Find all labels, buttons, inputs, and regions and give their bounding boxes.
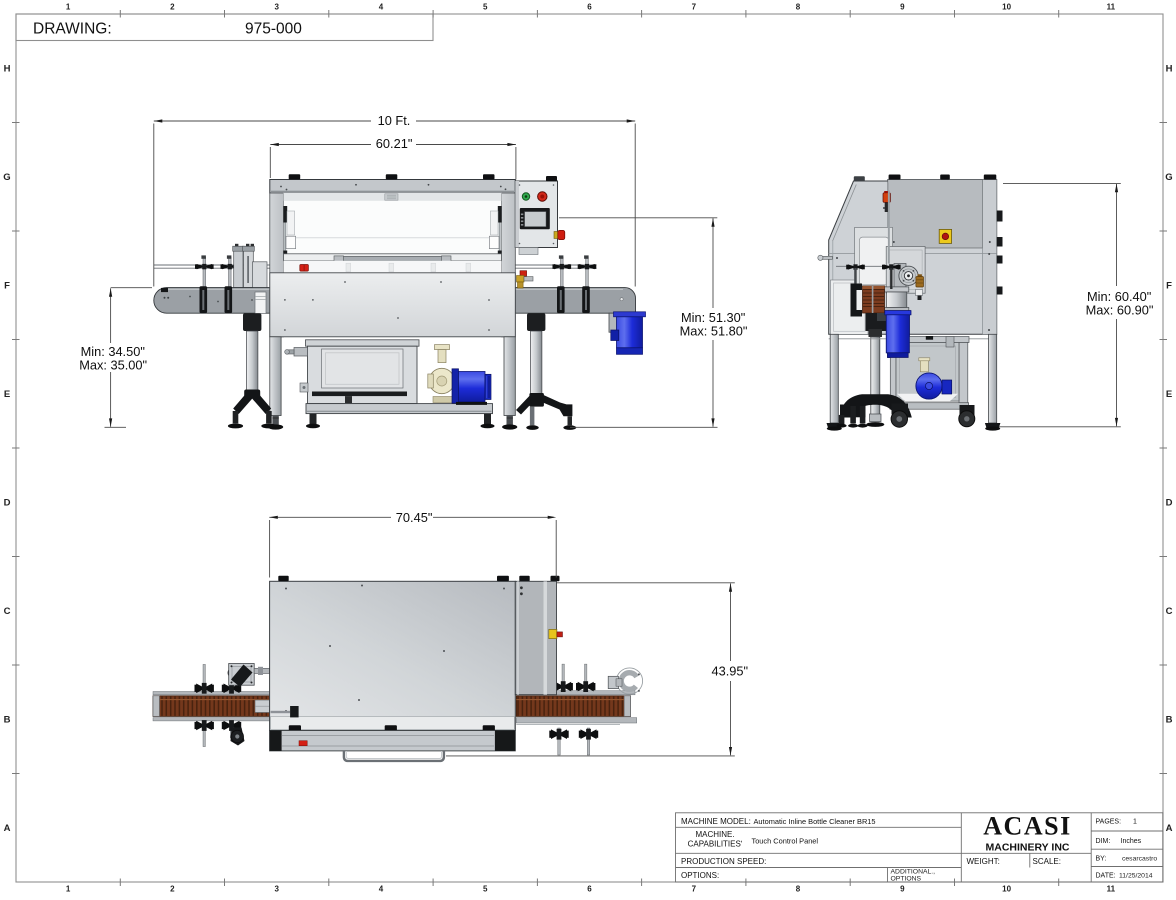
svg-text:Inches: Inches: [1121, 838, 1142, 845]
svg-text:OPTIONS:: OPTIONS:: [681, 871, 719, 880]
svg-text:cesarcastro: cesarcastro: [1122, 856, 1157, 863]
svg-text:11/25/2014: 11/25/2014: [1119, 873, 1153, 880]
svg-text:PRODUCTION SPEED:: PRODUCTION SPEED:: [681, 857, 766, 866]
svg-text:10: 10: [1002, 885, 1011, 894]
svg-text:H: H: [4, 64, 11, 75]
svg-text:MACHINERY INC: MACHINERY INC: [985, 841, 1069, 853]
svg-text:3: 3: [274, 885, 279, 894]
svg-text:5: 5: [483, 885, 488, 894]
svg-text:4: 4: [379, 885, 384, 894]
svg-text:G: G: [3, 172, 10, 183]
svg-text:MACHINE MODEL:: MACHINE MODEL:: [681, 817, 751, 826]
svg-text:D: D: [1166, 497, 1173, 508]
svg-text:C: C: [1166, 606, 1173, 617]
svg-text:E: E: [1166, 389, 1172, 400]
svg-text:9: 9: [900, 3, 905, 12]
svg-text:8: 8: [796, 3, 801, 12]
svg-text:BY:: BY:: [1096, 856, 1107, 863]
svg-text:B: B: [1166, 715, 1173, 726]
svg-text:E: E: [4, 389, 10, 400]
svg-text:8: 8: [796, 885, 801, 894]
svg-text:OPTIONS: OPTIONS: [891, 875, 922, 882]
svg-text:D: D: [4, 497, 11, 508]
svg-text:DIM:: DIM:: [1096, 838, 1111, 845]
svg-text:975-000: 975-000: [245, 21, 302, 38]
svg-text:1: 1: [1133, 819, 1137, 826]
svg-text:Max: 51.80": Max: 51.80": [680, 323, 748, 338]
svg-text:70.45": 70.45": [396, 510, 433, 525]
svg-text:7: 7: [692, 885, 697, 894]
svg-text:G: G: [1165, 172, 1172, 183]
svg-text:Max: 60.90": Max: 60.90": [1086, 302, 1154, 317]
svg-text:H: H: [1166, 64, 1173, 75]
svg-text:Automatic Inline Bottle Cleane: Automatic Inline Bottle Cleaner BR15: [754, 817, 876, 826]
svg-text:WEIGHT:: WEIGHT:: [967, 857, 1000, 866]
svg-text:60.21": 60.21": [376, 136, 413, 151]
svg-text:2: 2: [170, 3, 175, 12]
svg-text:1: 1: [66, 885, 71, 894]
svg-text:3: 3: [274, 3, 279, 12]
svg-text:DRAWING:: DRAWING:: [33, 21, 112, 38]
svg-text:2: 2: [170, 885, 175, 894]
svg-text:C: C: [4, 606, 11, 617]
svg-text:F: F: [1166, 280, 1172, 291]
svg-text:6: 6: [587, 3, 592, 12]
svg-text:4: 4: [379, 3, 384, 12]
svg-text:A: A: [1166, 823, 1173, 834]
svg-text:1: 1: [66, 3, 71, 12]
svg-text:7: 7: [692, 3, 697, 12]
svg-text:MACHINE.: MACHINE.: [695, 830, 734, 839]
svg-text:43.95": 43.95": [712, 664, 749, 679]
svg-text:F: F: [4, 280, 10, 291]
svg-text:PAGES:: PAGES:: [1096, 819, 1122, 826]
svg-text:6: 6: [587, 885, 592, 894]
svg-text:Touch Control Panel: Touch Control Panel: [752, 836, 819, 845]
svg-text:SCALE:: SCALE:: [1033, 857, 1061, 866]
svg-text:DATE:: DATE:: [1096, 873, 1116, 880]
svg-text:5: 5: [483, 3, 488, 12]
svg-text:10 Ft.: 10 Ft.: [378, 113, 411, 128]
svg-text:Max: 35.00": Max: 35.00": [79, 358, 147, 373]
svg-text:A: A: [4, 823, 11, 834]
svg-text:B: B: [4, 715, 11, 726]
svg-text:CAPABILITIESʹ: CAPABILITIESʹ: [688, 840, 743, 849]
svg-text:10: 10: [1002, 3, 1011, 12]
svg-text:9: 9: [900, 885, 905, 894]
svg-text:11: 11: [1107, 3, 1116, 12]
svg-text:11: 11: [1107, 885, 1116, 894]
svg-text:ACASI: ACASI: [983, 812, 1071, 841]
